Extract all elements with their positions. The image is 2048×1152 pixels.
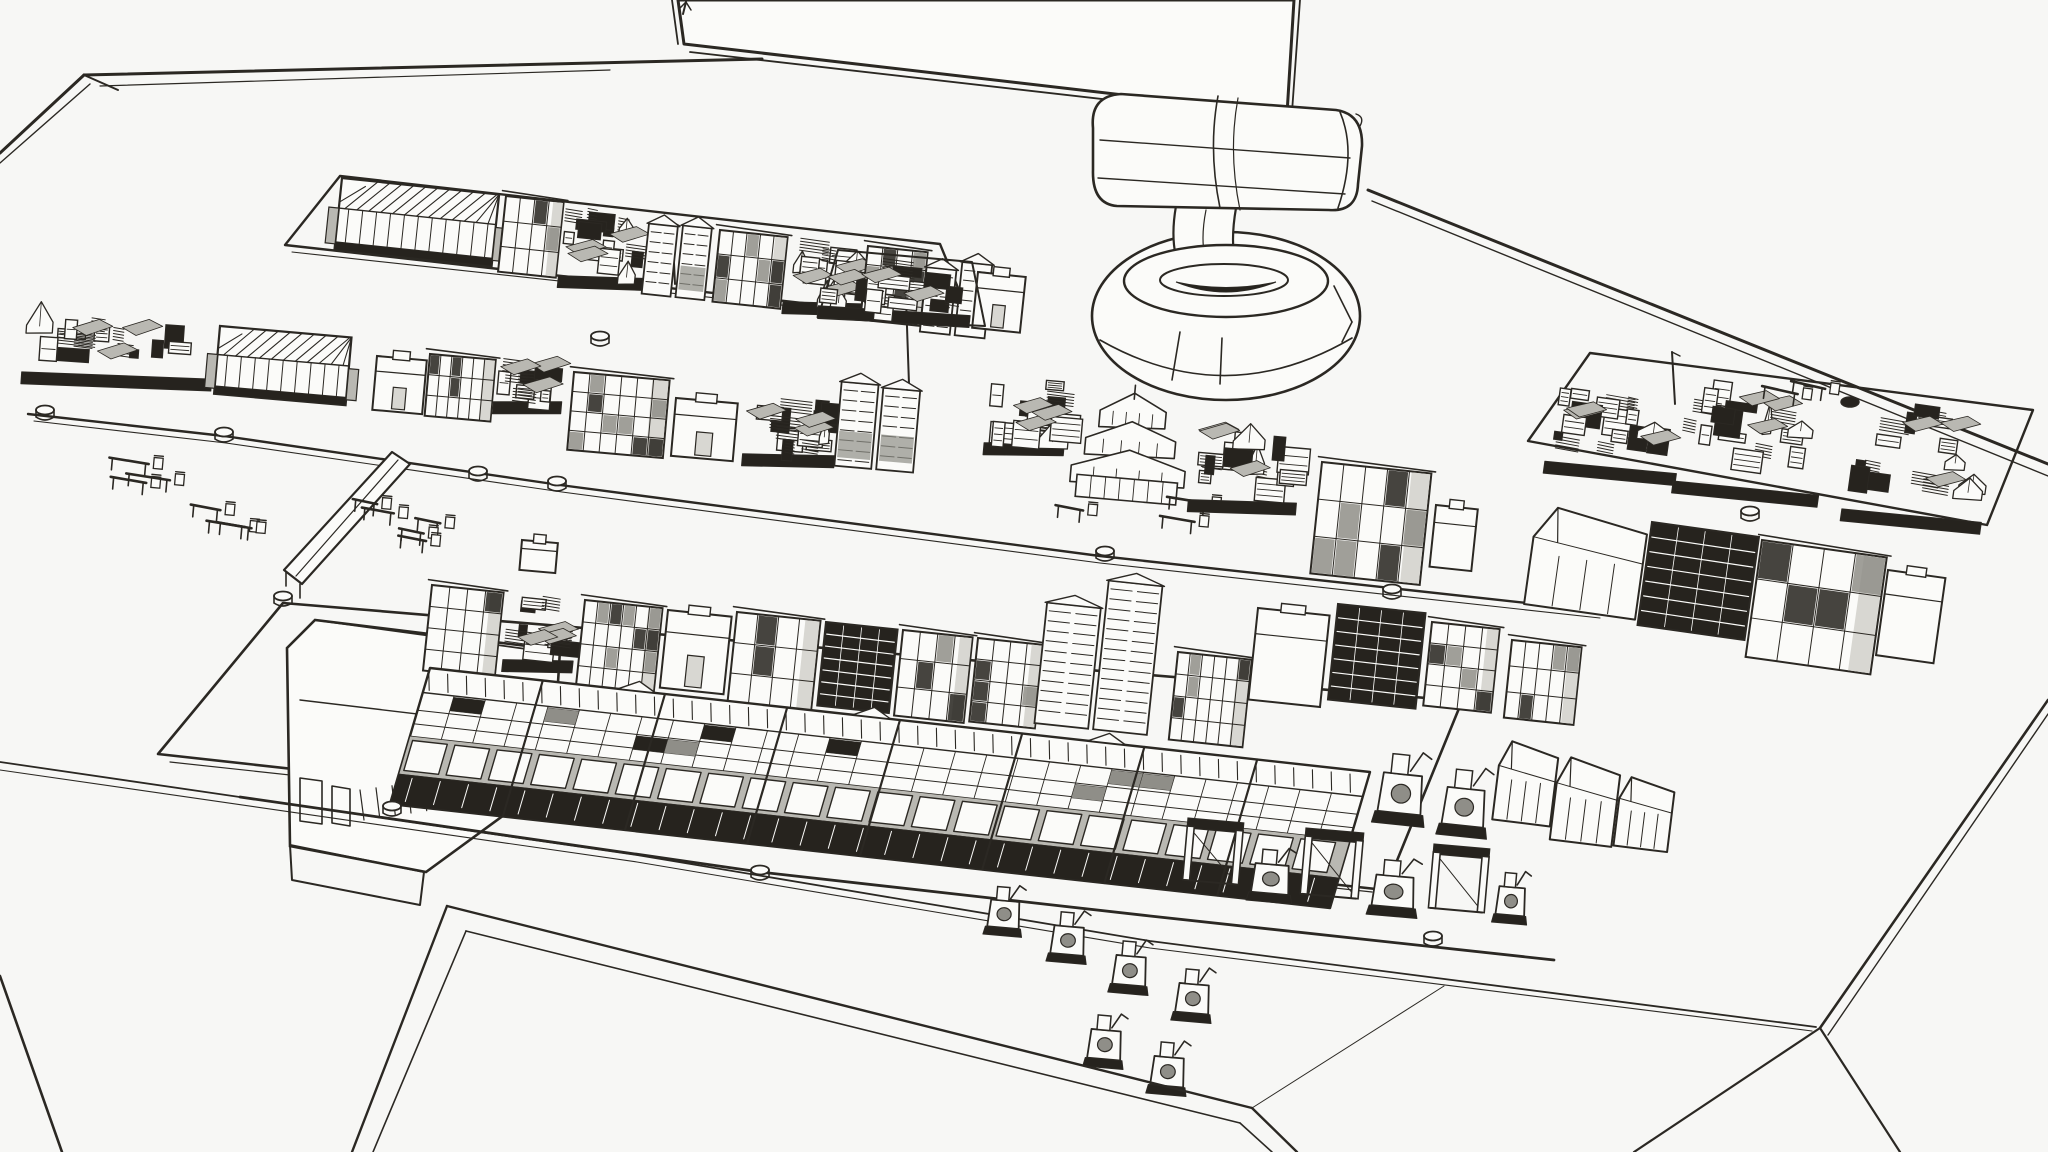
rowb-jumble-4 — [1187, 419, 1312, 522]
office-cart — [519, 533, 558, 573]
sketch-illustration — [0, 0, 2048, 1152]
office-desks-2 — [188, 499, 267, 542]
rowb-greenhouse — [204, 325, 361, 406]
fn-gridbox-2 — [708, 225, 792, 310]
rowd-whitebox-1 — [660, 603, 733, 694]
shed-2 — [1550, 756, 1622, 847]
rowd-gridbox-2 — [572, 595, 667, 696]
rowb-pagoda — [1069, 380, 1193, 505]
rowd-darkbox-1 — [817, 622, 897, 713]
rowd-gridbox-8 — [1500, 635, 1586, 726]
rowb-whitebox-2 — [671, 391, 738, 461]
rowd-whitebox-vent — [1248, 601, 1330, 707]
tray-outline — [352, 906, 1444, 1152]
office-desks-1 — [106, 452, 185, 498]
rowb-jumble-2 — [742, 394, 844, 474]
gantry-3 — [1428, 844, 1489, 913]
warehouse-shed — [1524, 505, 1649, 620]
robot-2 — [1436, 764, 1495, 839]
island-cluster-1 — [1543, 386, 1686, 491]
scatter-robot-3 — [1108, 937, 1154, 995]
cart-2 — [1366, 855, 1423, 918]
robot-1 — [1371, 748, 1432, 827]
rowb-gridbox-3 — [1306, 457, 1436, 586]
desk-factory-keyboard-sketch — [0, 0, 2048, 1152]
rowd-towers — [1032, 564, 1165, 735]
rowd-gridbox-3 — [723, 607, 825, 713]
shed-3 — [1613, 776, 1675, 852]
rowb-jumble-far-left — [21, 301, 216, 397]
rowb-whitebox-3 — [1430, 498, 1479, 571]
cart-3 — [1492, 869, 1532, 925]
rowd-gridbox-1 — [419, 580, 508, 679]
rowd-gridbox-6 — [1165, 647, 1256, 748]
shed-1 — [1492, 740, 1559, 826]
rowb-whitebox-1 — [372, 349, 427, 414]
rowd-darkbox-2 — [1328, 604, 1426, 709]
plate-right-machines — [1371, 740, 1675, 852]
rowb-jumble-1 — [492, 351, 571, 420]
scatter-robot-2 — [1046, 908, 1091, 965]
rowb-gridbox-2 — [563, 367, 674, 459]
monitor-arm-stand — [1092, 94, 1362, 400]
rowb-towers-1 — [832, 372, 923, 473]
rowd-jumble-1 — [502, 593, 587, 680]
warehouse-dark — [1638, 522, 1759, 640]
rowd-gridbox-7 — [1419, 617, 1504, 713]
warehouse-grid — [1742, 534, 1892, 674]
rowd-gridbox-4 — [890, 625, 977, 724]
rowb-jumble-3 — [983, 375, 1086, 463]
scatter-robot-4 — [1171, 965, 1217, 1023]
rowb-gridbox-1 — [421, 349, 501, 422]
scatter-robot-5 — [1083, 1011, 1129, 1069]
fn-gridbox-1 — [494, 191, 568, 278]
office-row — [106, 452, 558, 598]
fn-towers-1 — [640, 212, 715, 301]
scatter-robot-1 — [983, 883, 1027, 938]
island-cluster-3 — [1840, 396, 1996, 540]
fn-jumble-1 — [557, 206, 654, 297]
right-island — [1524, 352, 2033, 675]
warehouse-white — [1876, 563, 1946, 663]
